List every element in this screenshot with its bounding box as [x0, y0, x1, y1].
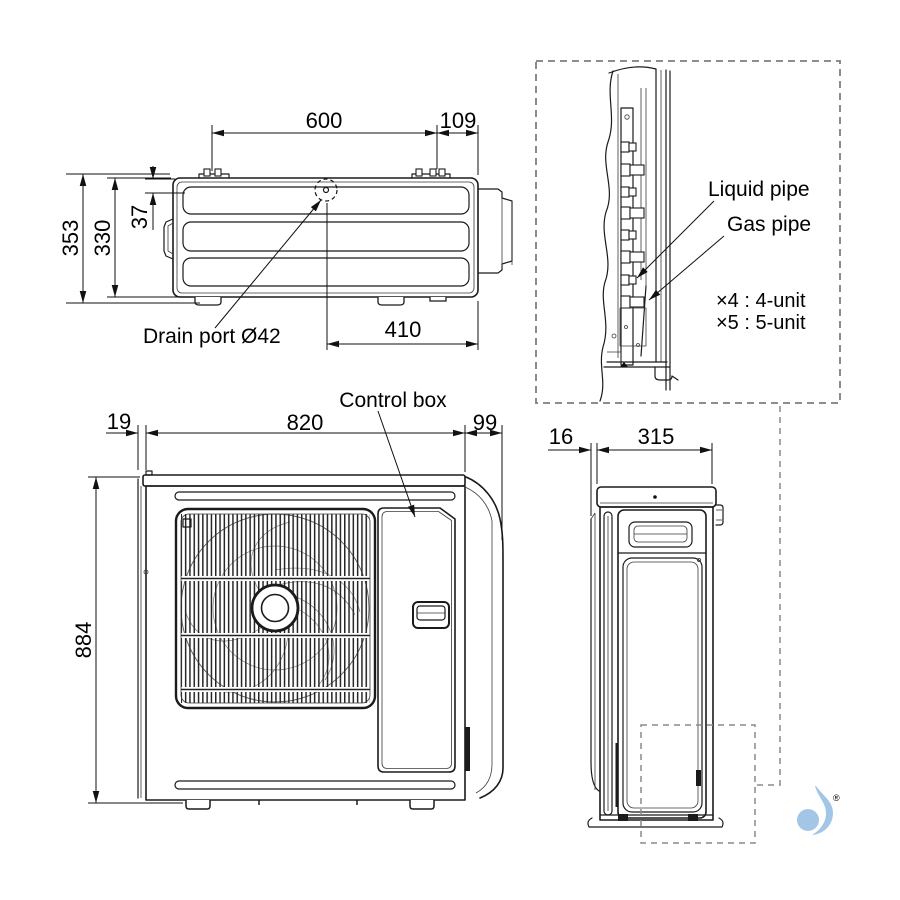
dim-410: 410 [385, 317, 422, 342]
gas-valve [621, 251, 644, 263]
fan-hub [252, 585, 298, 631]
registered-mark: ® [833, 793, 840, 803]
unit-feet [186, 800, 434, 809]
front-view-unit-body [138, 471, 503, 809]
pipe-detail-view: Liquid pipe Gas pipe ×4 : 4-unit ×5 : 5-… [536, 61, 840, 403]
dim-16: 16 [549, 424, 573, 449]
dim-109: 109 [440, 108, 477, 133]
side-view-dimensions: 16 315 [548, 424, 712, 516]
front-view-drawing: 19 820 99 884 Control box [71, 389, 503, 809]
drain-port-label: Drain port Ø42 [143, 325, 281, 348]
dim-600: 600 [306, 108, 343, 133]
break-line [600, 71, 613, 401]
control-box-label: Control box [339, 389, 447, 412]
control-box-panel [378, 508, 455, 772]
dim-37: 37 [127, 205, 152, 229]
front-panel-side [618, 510, 706, 818]
top-slat [183, 258, 469, 286]
top-view-dimensions: 600 109 353 330 37 410 Drain port Ø42 [58, 108, 478, 350]
dim-884: 884 [71, 622, 96, 659]
dim-315: 315 [638, 424, 675, 449]
detail-reference [641, 406, 780, 843]
gas-valve [621, 207, 644, 219]
liquid-valve [621, 187, 636, 197]
outdoor-unit-dimension-drawing: 600 109 353 330 37 410 Drain port Ø42 [0, 0, 900, 900]
control-box-arrow [378, 411, 415, 517]
dim-19: 19 [107, 409, 131, 434]
liquid-valve [621, 142, 636, 152]
gas-pipe-label: Gas pipe [727, 213, 811, 236]
liquid-valve [621, 275, 636, 285]
dim-820: 820 [287, 410, 324, 435]
valve-cover-top [478, 189, 512, 273]
technical-drawing-page: 600 109 353 330 37 410 Drain port Ø42 [0, 0, 900, 900]
dim-353: 353 [58, 220, 83, 257]
top-view-unit-body [164, 169, 512, 305]
liquid-valve [621, 230, 636, 240]
pipe-detail-drawing [600, 67, 678, 401]
dim-99: 99 [473, 410, 497, 435]
multiplier-4-label: ×4 : 4-unit [716, 290, 806, 312]
liquid-pipe-arrow [637, 201, 714, 278]
drain-arrow [215, 200, 321, 328]
bottom-vent-slot [175, 781, 455, 789]
detail-connector-line [757, 406, 780, 785]
unit-feet [195, 297, 446, 305]
top-view-drawing: 600 109 353 330 37 410 Drain port Ø42 [58, 108, 512, 350]
panel-latch [696, 770, 701, 786]
top-slat [183, 222, 469, 251]
multiplier-5-label: ×5 : 5-unit [716, 312, 806, 334]
side-view-unit-body [588, 487, 723, 827]
pipe-labels: Liquid pipe Gas pipe ×4 : 4-unit ×5 : 5-… [637, 178, 811, 334]
gas-valve [621, 296, 644, 308]
dim-330: 330 [90, 220, 115, 257]
side-view-drawing: 16 315 [548, 406, 780, 843]
gas-valve [621, 164, 644, 176]
liquid-pipe-label: Liquid pipe [708, 178, 810, 201]
side-profile [465, 477, 503, 798]
water-drop-logo: ® [797, 786, 840, 835]
valve-cover-side [716, 505, 723, 525]
mounting-lugs [199, 169, 450, 178]
logo-dot [797, 809, 819, 831]
gas-pipe-arrow [649, 236, 724, 300]
top-vent-slot [175, 492, 455, 500]
